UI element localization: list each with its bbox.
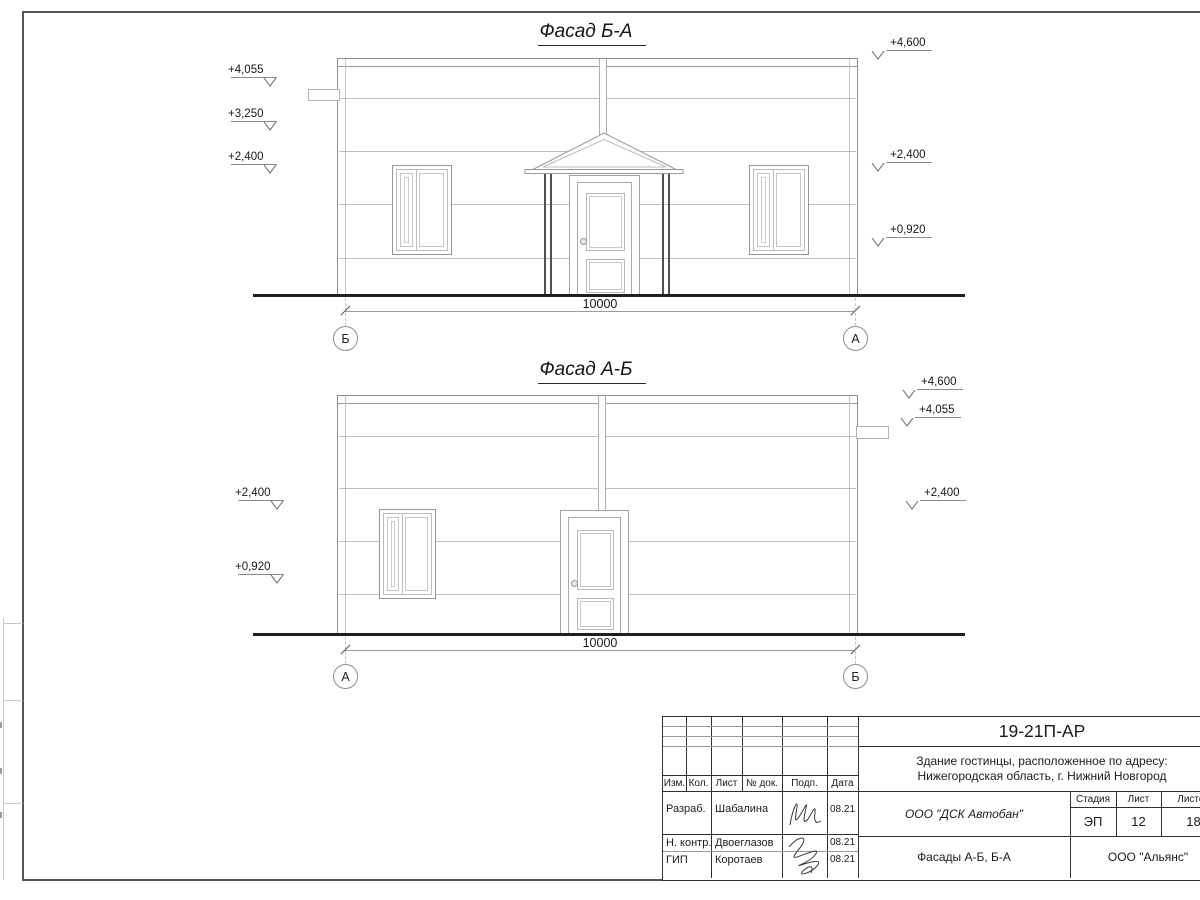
facade2-title: Фасад А-Б: [472, 359, 712, 381]
facade2-axis-right-label: Б: [851, 670, 859, 684]
tb-col-kol: Кол.: [686, 775, 711, 791]
facade1-building: [337, 58, 858, 296]
tb-sheet-label: Лист: [1116, 791, 1161, 807]
tb-sheets-value: 18: [1161, 807, 1200, 836]
facade1-window-left-casement: [400, 173, 413, 247]
facade1-gutter-outlet: [308, 89, 340, 101]
facade1-axis-left-label: Б: [341, 332, 349, 346]
elevation-rule: [886, 237, 932, 238]
tb-gridline: [663, 746, 858, 747]
elevation-check-icon: [900, 418, 914, 427]
facade1-extension-line-right: [855, 298, 856, 326]
elevation-value: +4,600: [921, 376, 957, 388]
tb-col-list: Лист: [711, 775, 742, 791]
facade1-door-lower-panel-inner: [589, 262, 622, 290]
frame-left: [22, 11, 24, 881]
tb-name: Шабалина: [713, 799, 781, 819]
tb-sheet-title: Фасады А-Б, Б-А: [858, 836, 1070, 878]
facade1-door: [569, 175, 640, 295]
facade2-window-frame: [383, 513, 432, 595]
elevation-rule: [886, 162, 932, 163]
elevation-check-icon: [871, 163, 885, 172]
tb-contractor: ООО "ДСК Автобан": [858, 791, 1070, 836]
tb-project-line2: Нижегородская область, г. Нижний Новгоро…: [918, 769, 1167, 784]
facade2-door: [560, 510, 629, 634]
tb-gridline: [663, 736, 858, 737]
facade2-door-lower-panel-inner: [580, 601, 611, 627]
facade1-window-right-mullion: [773, 170, 774, 250]
tb-col-podp: Подп.: [782, 775, 827, 791]
facade2-window: [379, 509, 436, 599]
signature: [784, 795, 826, 833]
tb-name: Двоеглазов: [713, 834, 783, 851]
elevation-value: +0,920: [235, 561, 271, 573]
elevation-mark: +2,400: [924, 487, 960, 499]
tb-project-line1: Здание гостинцы, расположенное по адресу…: [916, 754, 1167, 769]
facade1-window-left-frame: [396, 169, 448, 251]
side-stamp-line: [3, 700, 23, 701]
tb-role: Разраб.: [664, 799, 712, 819]
drawing-sheet: Фасад Б-А: [0, 0, 1200, 900]
elevation-check-icon: [263, 165, 277, 174]
elevation-mark: +0,920: [235, 561, 271, 573]
elevation-check-icon: [263, 78, 277, 87]
facade2-door-knob: [571, 580, 578, 587]
elevation-mark: +2,400: [228, 151, 264, 163]
facade1-window-left-mullion: [416, 170, 417, 250]
facade2-window-casement-inner: [391, 521, 395, 587]
elevation-rule: [915, 417, 961, 418]
tb-col-izm: Изм.: [663, 775, 686, 791]
tb-client: ООО "Альянс": [1070, 836, 1200, 878]
tb-doc-number: 19-21П-АР: [858, 717, 1200, 746]
facade2-corner-trim-left: [345, 396, 346, 634]
side-stamp-text-fragment: [0, 722, 2, 728]
elevation-check-icon: [871, 238, 885, 247]
elevation-check-icon: [871, 51, 885, 60]
tb-sheet-value: 12: [1116, 807, 1161, 836]
elevation-check-icon: [905, 501, 919, 510]
facade1-door-upper-panel: [586, 193, 625, 251]
tb-stage-label: Стадия: [1070, 791, 1116, 807]
facade2-building: [337, 395, 858, 635]
facade2-axis-marker-right: Б: [843, 664, 868, 689]
tb-stage-value: ЭП: [1070, 807, 1116, 836]
side-stamp-line: [3, 803, 23, 804]
facade1-title: Фасад Б-А: [472, 21, 712, 43]
facade1-axis-right-label: А: [851, 332, 859, 346]
tb-role: ГИП: [664, 851, 712, 868]
tb-date: 08.21: [827, 834, 858, 851]
facade1-window-right-casement: [757, 173, 770, 247]
side-stamp-text-fragment: [0, 812, 2, 818]
tb-name: Коротаев: [713, 851, 783, 868]
facade2-dimension-line: [345, 650, 855, 651]
side-stamp-vline: [3, 618, 4, 880]
signature: [781, 833, 829, 879]
elevation-check-icon: [270, 501, 284, 510]
tb-role: Н. контр.: [664, 834, 712, 851]
facade2-axis-marker-left: А: [333, 664, 358, 689]
facade2-gutter-outlet: [856, 426, 889, 439]
facade1-window-right-casement-inner: [761, 177, 766, 243]
elevation-rule: [886, 50, 932, 51]
elevation-check-icon: [270, 575, 284, 584]
facade2-axis-left-label: А: [341, 670, 349, 684]
facade1-porch-column-right: [662, 174, 670, 294]
facade1-axis-marker-right: А: [843, 326, 868, 351]
facade1-extension-line-left: [345, 298, 346, 326]
facade1-door-leaf: [577, 182, 632, 295]
elevation-mark: +3,250: [228, 108, 264, 120]
facade1-dimension-label: 10000: [540, 297, 660, 311]
elevation-value: +3,250: [228, 108, 264, 120]
tb-gridline: [663, 791, 858, 792]
elevation-mark: +4,600: [921, 376, 957, 388]
facade2-window-casement: [387, 517, 399, 591]
facade2-corner-trim-right: [849, 396, 850, 634]
facade1-window-right: [749, 165, 809, 255]
elevation-mark: +4,055: [919, 404, 955, 416]
facade1-axis-marker-left: Б: [333, 326, 358, 351]
facade2-dimension-label: 10000: [540, 636, 660, 650]
title-block: Изм. Кол. Лист № док. Подп. Дата Разраб.…: [662, 716, 1200, 881]
facade1-door-upper-panel-inner: [589, 196, 622, 248]
elevation-mark: +2,400: [890, 149, 926, 161]
elevation-mark: +4,600: [890, 37, 926, 49]
facade1-door-lower-panel: [586, 259, 625, 293]
elevation-check-icon: [263, 122, 277, 131]
elevation-rule: [917, 389, 963, 390]
facade2-title-text: Фасад А-Б: [538, 359, 647, 384]
elevation-value: +2,400: [924, 487, 960, 499]
tb-date: 08.21: [827, 851, 858, 868]
elevation-value: +0,920: [890, 224, 926, 236]
facade1-porch-column-left: [544, 174, 552, 294]
elevation-value: +4,055: [228, 64, 264, 76]
facade1-title-text: Фасад Б-А: [538, 21, 647, 46]
facade2-window-mullion: [402, 514, 403, 594]
elevation-value: +2,400: [890, 149, 926, 161]
tb-sheets-label: Листов: [1161, 791, 1200, 807]
frame-top: [23, 11, 1200, 13]
facade1-window-left-fixed: [419, 173, 444, 247]
elevation-value: +4,055: [919, 404, 955, 416]
elevation-rule: [920, 500, 966, 501]
facade2-door-lower-panel: [577, 598, 614, 630]
facade1-dimension-line: [345, 311, 855, 312]
elevation-value: +4,600: [890, 37, 926, 49]
facade1-window-right-fixed: [776, 173, 801, 247]
facade2-vent-pipe: [598, 396, 606, 510]
elevation-value: +2,400: [228, 151, 264, 163]
tb-project-name: Здание гостинцы, расположенное по адресу…: [858, 746, 1200, 791]
facade2-door-upper-panel: [577, 530, 614, 590]
facade1-window-left-casement-inner: [404, 177, 409, 243]
elevation-check-icon: [902, 390, 916, 399]
elevation-mark: +0,920: [890, 224, 926, 236]
tb-gridline: [663, 726, 858, 727]
facade2-door-upper-panel-inner: [580, 533, 611, 587]
side-stamp-line: [3, 623, 23, 624]
facade1-window-left: [392, 165, 452, 255]
elevation-mark: +2,400: [235, 487, 271, 499]
side-stamp-text-fragment: [0, 768, 2, 774]
elevation-mark: +4,055: [228, 64, 264, 76]
tb-col-doc: № док.: [742, 775, 782, 791]
facade1-door-knob: [580, 238, 587, 245]
tb-col-data: Дата: [827, 775, 858, 791]
facade2-window-fixed: [405, 517, 428, 591]
facade2-door-leaf: [568, 517, 621, 634]
elevation-value: +2,400: [235, 487, 271, 499]
tb-date: 08.21: [827, 799, 858, 819]
facade1-window-right-frame: [753, 169, 805, 251]
